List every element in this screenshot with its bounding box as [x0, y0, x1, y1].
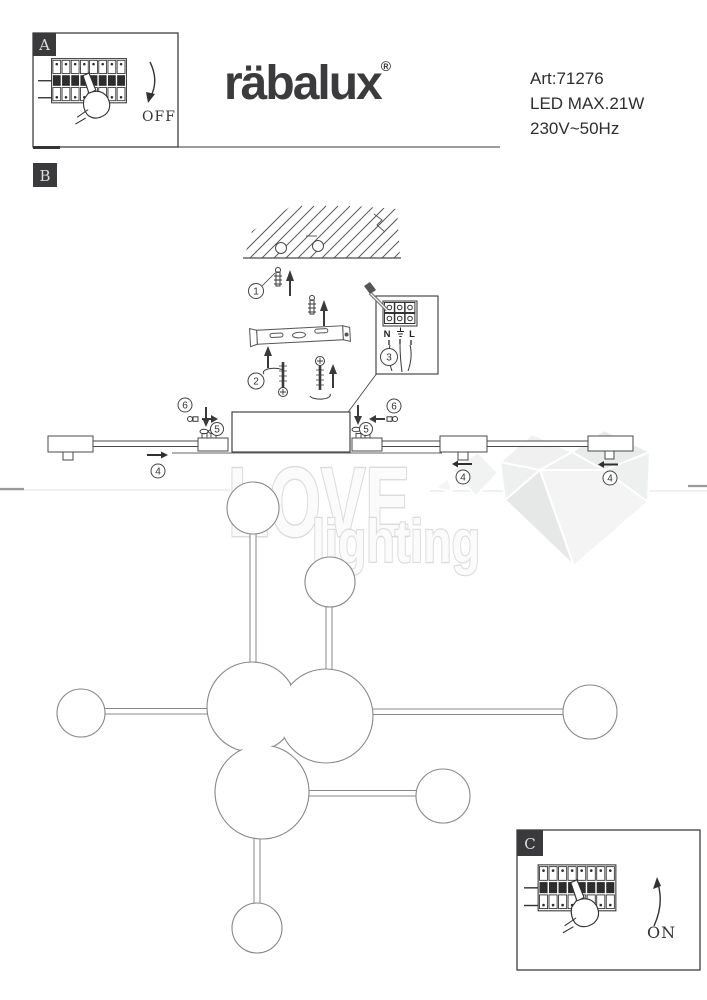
- article-number: Art:71276: [530, 66, 700, 91]
- manual-drawing: A OFF B: [0, 0, 707, 1000]
- drill-hole: [276, 243, 287, 254]
- svg-text:5: 5: [363, 425, 369, 436]
- step-marker-6: 6: [178, 398, 192, 412]
- svg-text:4: 4: [607, 474, 613, 485]
- canopy: [232, 412, 350, 452]
- section-b-label: B: [39, 167, 50, 185]
- instruction-sheet: A OFF B: [0, 0, 707, 1000]
- svg-text:1: 1: [253, 287, 259, 298]
- step-marker-3: 3: [381, 349, 398, 366]
- drill-hole: [313, 241, 324, 252]
- step-marker-4: 4: [603, 471, 617, 485]
- power-rating: LED MAX.21W: [530, 91, 700, 116]
- step-marker-2: 2: [248, 373, 264, 389]
- live-terminal-label: L: [409, 329, 415, 340]
- svg-text:4: 4: [460, 473, 466, 484]
- breaker-off-label: OFF: [142, 109, 176, 125]
- svg-text:6: 6: [391, 402, 397, 413]
- svg-text:5: 5: [214, 425, 220, 436]
- step-marker-4: 4: [456, 470, 470, 484]
- product-info: Art:71276 LED MAX.21W 230V~50Hz: [530, 66, 700, 141]
- section-c-label: C: [524, 835, 535, 853]
- step-marker-1: 1: [249, 284, 264, 299]
- brand-logo-text: räbalux: [224, 57, 381, 110]
- svg-text:6: 6: [182, 401, 188, 412]
- svg-text:2: 2: [253, 377, 259, 388]
- brand-logo: räbalux®: [224, 56, 504, 116]
- svg-text:3: 3: [386, 353, 392, 364]
- section-b-badge: B: [33, 163, 57, 187]
- step-marker-5: 5: [360, 423, 373, 436]
- neutral-terminal-label: N: [384, 329, 391, 340]
- step-marker-6: 6: [387, 399, 401, 413]
- section-c-box: C ON: [517, 830, 700, 970]
- breaker-on-label: ON: [647, 923, 676, 942]
- svg-text:4: 4: [155, 467, 161, 478]
- step-marker-4: 4: [151, 464, 165, 478]
- step-marker-5: 5: [211, 423, 224, 436]
- registered-mark: ®: [381, 58, 391, 74]
- section-a-label: A: [38, 36, 50, 54]
- voltage-rating: 230V~50Hz: [530, 116, 700, 141]
